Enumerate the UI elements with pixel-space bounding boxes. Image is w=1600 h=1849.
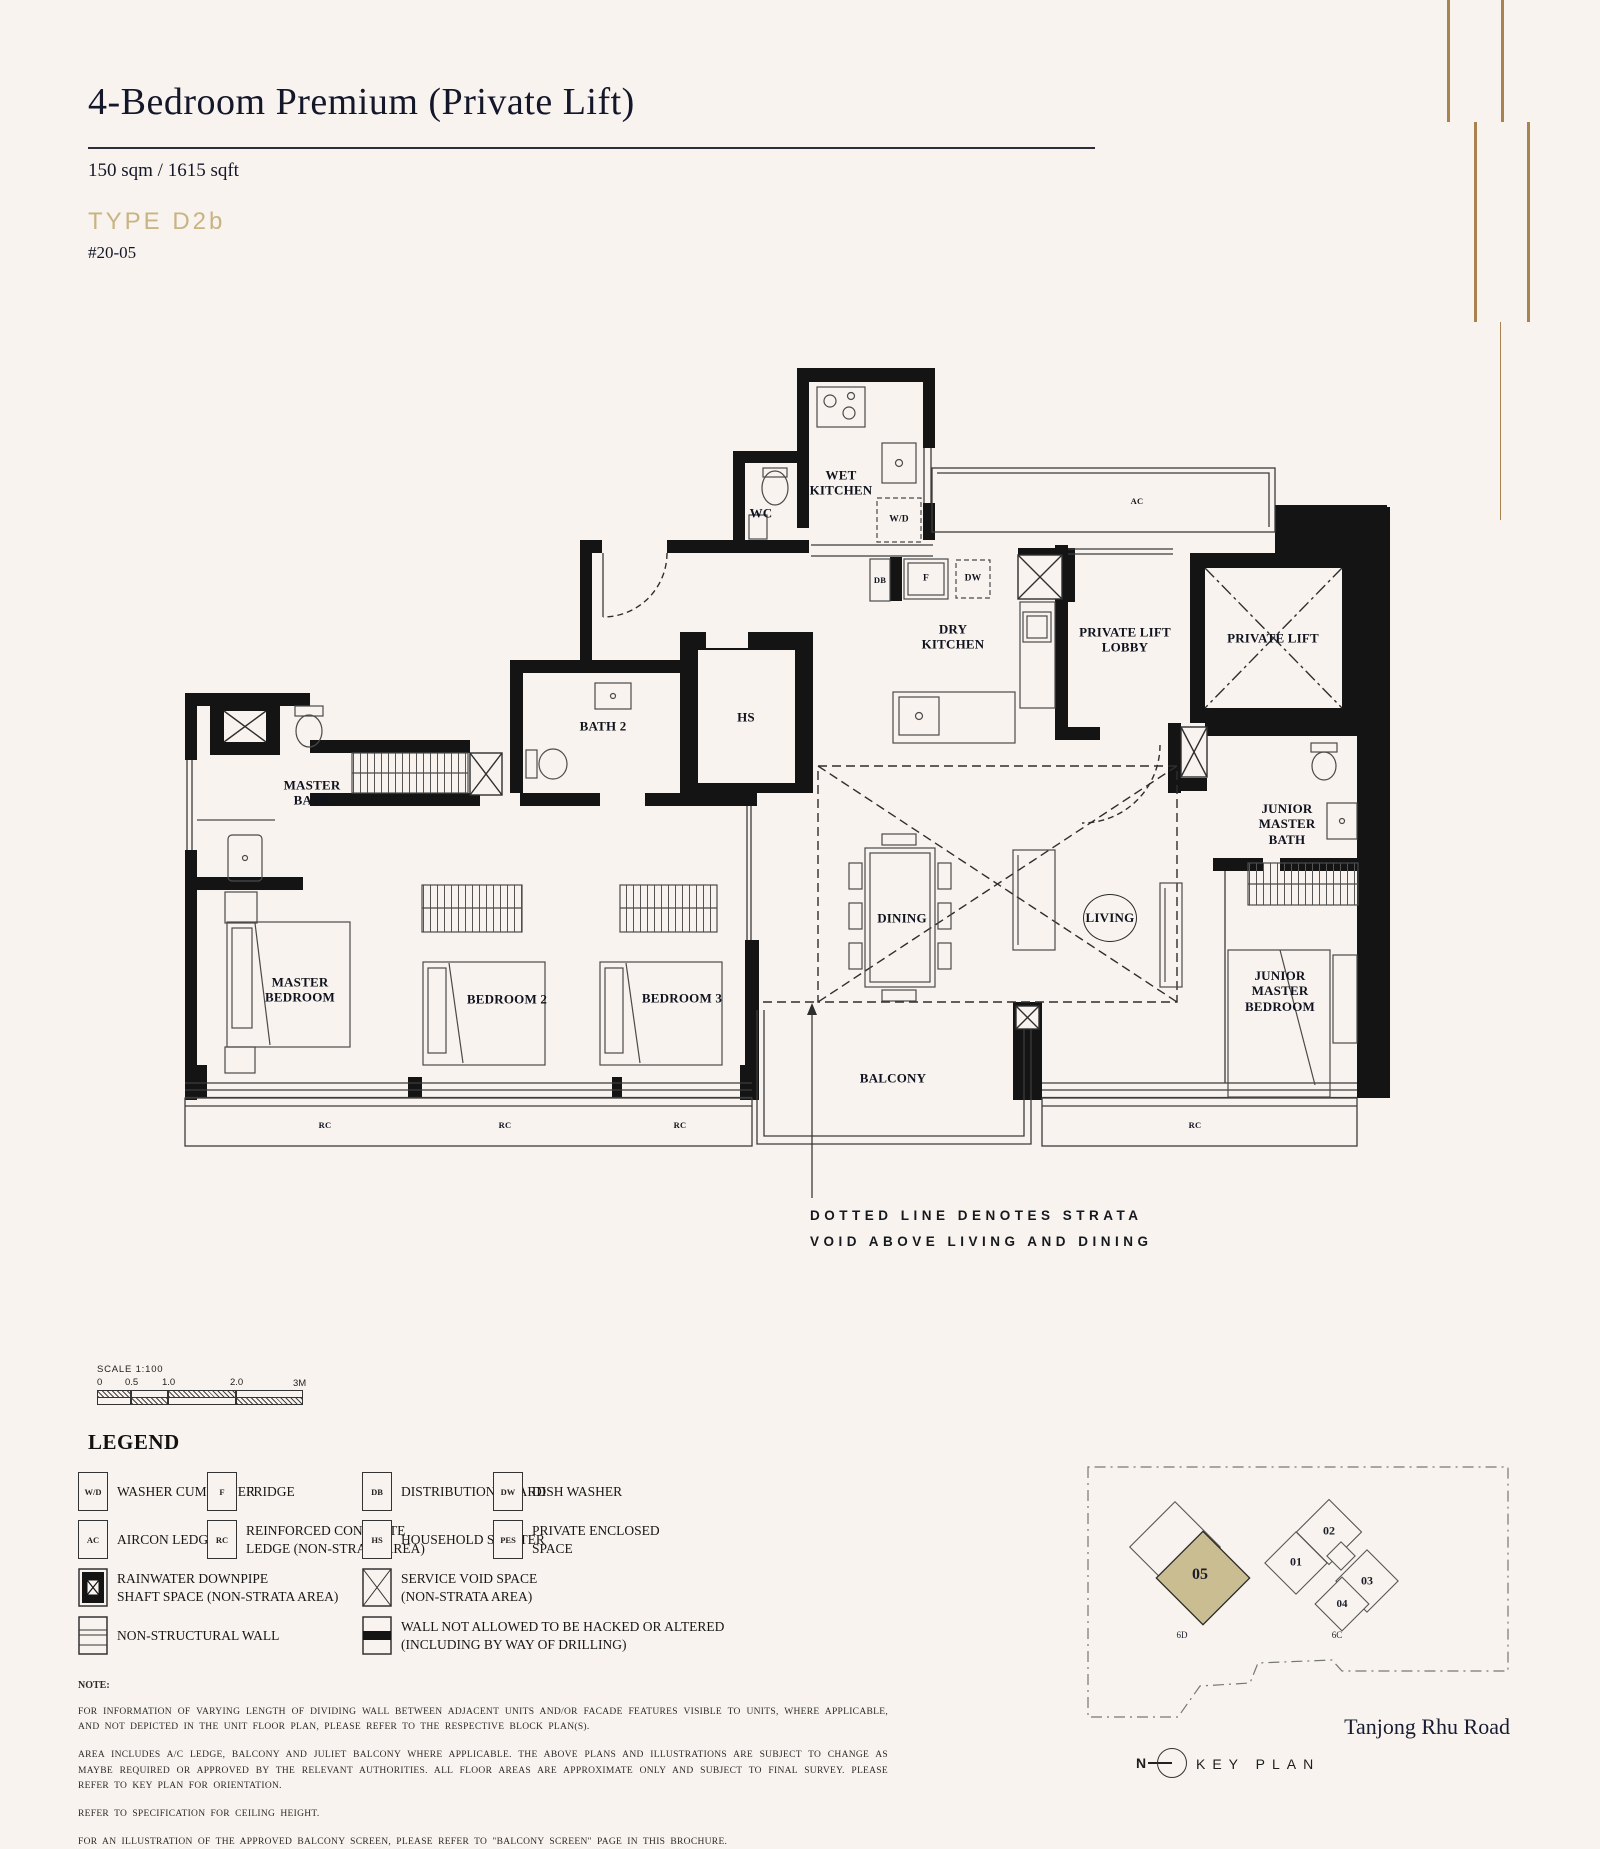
- room-label-master-bath: MASTER BATH: [284, 778, 341, 809]
- room-label-master-bedroom: MASTER BEDROOM: [265, 975, 335, 1006]
- fixture-label-ac: AC: [1131, 496, 1144, 506]
- north-label: N: [1136, 1755, 1146, 1771]
- decor-line: [1447, 0, 1450, 122]
- note-paragraph: FOR INFORMATION OF VARYING LENGTH OF DIV…: [78, 1705, 888, 1735]
- decor-line: [1500, 322, 1501, 520]
- keyplan-block-6c: 6C: [1332, 1630, 1343, 1640]
- north-circle-icon: [1157, 1748, 1187, 1778]
- legend-item-rainwater-downpipe: RAINWATER DOWNPIPE SHAFT SPACE (NON-STRA…: [78, 1568, 338, 1607]
- rainwater-downpipe-icon: [78, 1568, 108, 1607]
- note-paragraph: REFER TO SPECIFICATION FOR CEILING HEIGH…: [78, 1807, 888, 1822]
- rc-ledge-label: RC: [499, 1120, 512, 1130]
- rc-ledge-label: RC: [674, 1120, 687, 1130]
- decor-line: [1527, 122, 1530, 322]
- floor-plan: WET KITCHEN WC W/D AC DB F DW DRY KITCHE…: [175, 365, 1390, 1265]
- fixture-label-dw: DW: [965, 573, 982, 584]
- legend-item-pes: PES PRIVATE ENCLOSED SPACE: [493, 1520, 660, 1559]
- room-label-dry-kitchen: DRY KITCHEN: [922, 622, 985, 653]
- fixture-label-wd: W/D: [889, 514, 909, 525]
- legend-item-service-void: SERVICE VOID SPACE (NON-STRATA AREA): [362, 1568, 537, 1607]
- page-title: 4-Bedroom Premium (Private Lift): [88, 80, 635, 124]
- pes-icon: PES: [493, 1520, 523, 1559]
- keyplan-unit-01: 01: [1290, 1555, 1302, 1570]
- keyplan-unit-02: 02: [1323, 1524, 1335, 1539]
- distribution-board-icon: DB: [362, 1472, 392, 1511]
- room-label-bedroom2: BEDROOM 2: [467, 991, 547, 1006]
- legend-item-aircon-ledge: AC AIRCON LEDGE: [78, 1520, 216, 1559]
- scale-bar-graphic: [97, 1390, 303, 1404]
- room-label-bath2: BATH 2: [580, 718, 627, 733]
- note-paragraph: AREA INCLUDES A/C LEDGE, BALCONY AND JUL…: [78, 1748, 888, 1794]
- strata-void-annotation: DOTTED LINE DENOTES STRATA VOID ABOVE LI…: [810, 1203, 1153, 1254]
- keyplan-title: KEY PLAN: [1196, 1756, 1320, 1772]
- note-heading: NOTE:: [78, 1680, 888, 1691]
- room-label-bedroom3: BEDROOM 3: [642, 990, 722, 1005]
- legend-item-wall-not-hackable: WALL NOT ALLOWED TO BE HACKED OR ALTERED…: [362, 1616, 741, 1655]
- room-label-junior-master-bedroom: JUNIOR MASTER BEDROOM: [1245, 968, 1315, 1014]
- notes-section: NOTE: FOR INFORMATION OF VARYING LENGTH …: [78, 1680, 888, 1849]
- fixture-label-db: DB: [874, 575, 886, 585]
- room-label-wc: WC: [750, 505, 773, 520]
- key-plan: 05 01 02 03 04 6D 6C: [1080, 1455, 1520, 1849]
- decor-line: [1501, 0, 1504, 122]
- rc-ledge-icon: RC: [207, 1520, 237, 1559]
- scale-tick: 1.0: [162, 1377, 175, 1388]
- room-label-living: LIVING: [1086, 910, 1135, 925]
- keyplan-unit-03: 03: [1361, 1574, 1373, 1589]
- scale-tick: 3M: [293, 1378, 306, 1389]
- non-structural-wall-icon: [78, 1616, 108, 1655]
- scale-tick: 2.0: [230, 1377, 243, 1388]
- decor-line: [1474, 122, 1477, 322]
- room-label-private-lift: PRIVATE LIFT: [1227, 630, 1319, 645]
- keyplan-block-6d: 6D: [1177, 1630, 1188, 1640]
- room-label-private-lift-lobby: PRIVATE LIFT LOBBY: [1079, 625, 1171, 656]
- rc-ledge-label: RC: [1189, 1120, 1202, 1130]
- keyplan-unit-04: 04: [1337, 1598, 1348, 1610]
- scale-bar: SCALE 1:100 0 0.5 1.0 2.0 3M: [97, 1364, 327, 1424]
- aircon-ledge-icon: AC: [78, 1520, 108, 1559]
- road-label: Tanjong Rhu Road: [1270, 1714, 1510, 1740]
- wall-not-hackable-icon: [362, 1616, 392, 1655]
- legend-title: LEGEND: [88, 1430, 180, 1455]
- key-plan-drawing: [1080, 1455, 1520, 1849]
- scale-tick: 0.5: [125, 1377, 138, 1388]
- floor-plan-brochure-page: 4-Bedroom Premium (Private Lift) 150 sqm…: [0, 0, 1600, 1849]
- room-label-balcony: BALCONY: [860, 1070, 926, 1085]
- unit-area: 150 sqm / 1615 sqft: [88, 160, 239, 182]
- unit-type-label: TYPE D2b: [88, 208, 225, 236]
- room-label-junior-master-bath: JUNIOR MASTER BATH: [1259, 801, 1316, 847]
- legend-item-dish-washer: DW DISH WASHER: [493, 1472, 622, 1511]
- washer-dryer-icon: W/D: [78, 1472, 108, 1511]
- floor-plan-drawing: [175, 365, 1390, 1265]
- service-void-icon: [362, 1568, 392, 1607]
- room-label-living-circle: LIVING: [1083, 894, 1137, 942]
- dish-washer-icon: DW: [493, 1472, 523, 1511]
- room-label-dining: DINING: [877, 910, 927, 925]
- legend-item-fridge: F FRIDGE: [207, 1472, 295, 1511]
- scale-label: SCALE 1:100: [97, 1364, 327, 1375]
- note-paragraph: FOR AN ILLUSTRATION OF THE APPROVED BALC…: [78, 1835, 888, 1849]
- fixture-label-fridge: F: [923, 573, 929, 584]
- strata-void-arrow: [807, 1003, 817, 1198]
- keyplan-unit-05: 05: [1192, 1566, 1208, 1584]
- unit-number: #20-05: [88, 243, 136, 263]
- title-underline: [88, 147, 1095, 149]
- room-label-wet-kitchen: WET KITCHEN: [810, 468, 873, 499]
- room-label-hs: HS: [737, 709, 755, 724]
- household-shelter-icon: HS: [362, 1520, 392, 1559]
- rc-ledge-label: RC: [319, 1120, 332, 1130]
- scale-tick: 0: [97, 1377, 102, 1388]
- fridge-icon: F: [207, 1472, 237, 1511]
- legend-item-non-structural-wall: NON-STRUCTURAL WALL: [78, 1616, 279, 1655]
